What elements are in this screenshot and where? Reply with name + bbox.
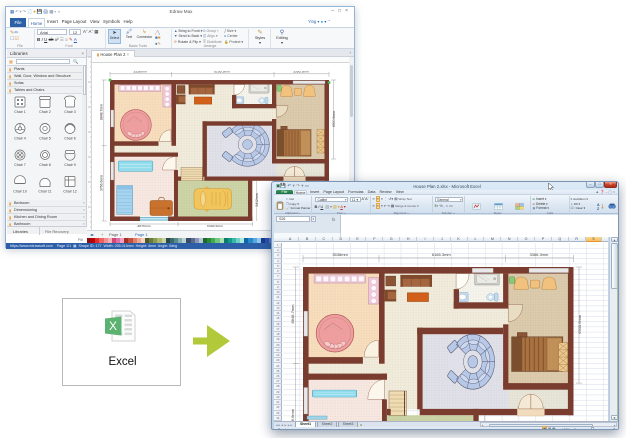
svg-text:Chair 7: Chair 7 <box>14 163 26 167</box>
svg-text:4876mm: 4876mm <box>137 225 150 227</box>
svg-text:8848.7mm: 8848.7mm <box>100 104 104 120</box>
svg-text:2412mm: 2412mm <box>255 193 259 206</box>
svg-text:8848.7mm: 8848.7mm <box>290 304 295 324</box>
svg-text:Z: Z <box>597 207 600 210</box>
svg-text:3366.3mm: 3366.3mm <box>293 71 309 74</box>
svg-text:Chair 10: Chair 10 <box>13 190 27 194</box>
svg-text:3366.3mm: 3366.3mm <box>529 253 549 257</box>
svg-text:Chair 3: Chair 3 <box>64 110 76 114</box>
svg-text:3538mm: 3538mm <box>133 71 146 74</box>
svg-text:6166.3mm: 6166.3mm <box>214 71 230 74</box>
svg-text:Chair 12: Chair 12 <box>63 190 77 194</box>
svg-text:Chair 1: Chair 1 <box>14 110 26 114</box>
svg-text:Chair 2: Chair 2 <box>39 110 51 114</box>
svg-text:6500.6mm: 6500.6mm <box>577 314 582 334</box>
svg-text:6048.8mm: 6048.8mm <box>207 225 223 227</box>
svg-text:Chair 5: Chair 5 <box>39 137 51 141</box>
svg-text:Chair 11: Chair 11 <box>38 190 51 194</box>
svg-text:3538mm: 3538mm <box>332 253 348 257</box>
svg-text:6500.6mm: 6500.6mm <box>332 111 336 127</box>
svg-text:3766.6mm: 3766.6mm <box>290 408 295 421</box>
svg-text:X: X <box>109 319 117 333</box>
svg-text:Chair 6: Chair 6 <box>64 137 76 141</box>
svg-text:Chair 9: Chair 9 <box>64 163 76 167</box>
svg-text:Chair 8: Chair 8 <box>39 163 51 167</box>
svg-text:3766.6mm: 3766.6mm <box>100 175 104 191</box>
svg-text:Chair 4: Chair 4 <box>14 137 26 141</box>
svg-text:6166.3mm: 6166.3mm <box>432 253 452 257</box>
